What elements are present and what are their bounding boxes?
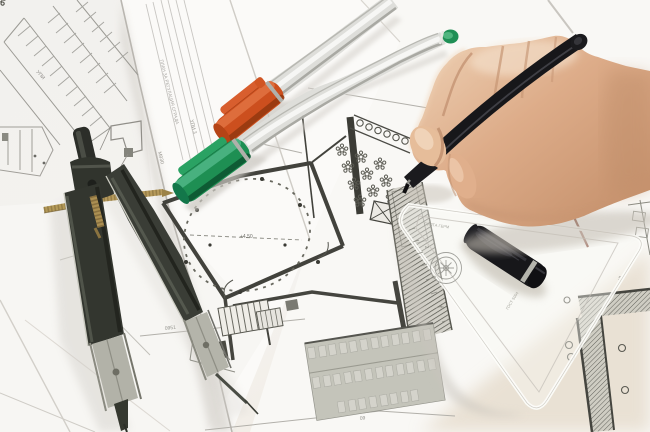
svg-text:09: 09: [360, 415, 366, 422]
svg-text:+4.50: +4.50: [240, 234, 253, 240]
